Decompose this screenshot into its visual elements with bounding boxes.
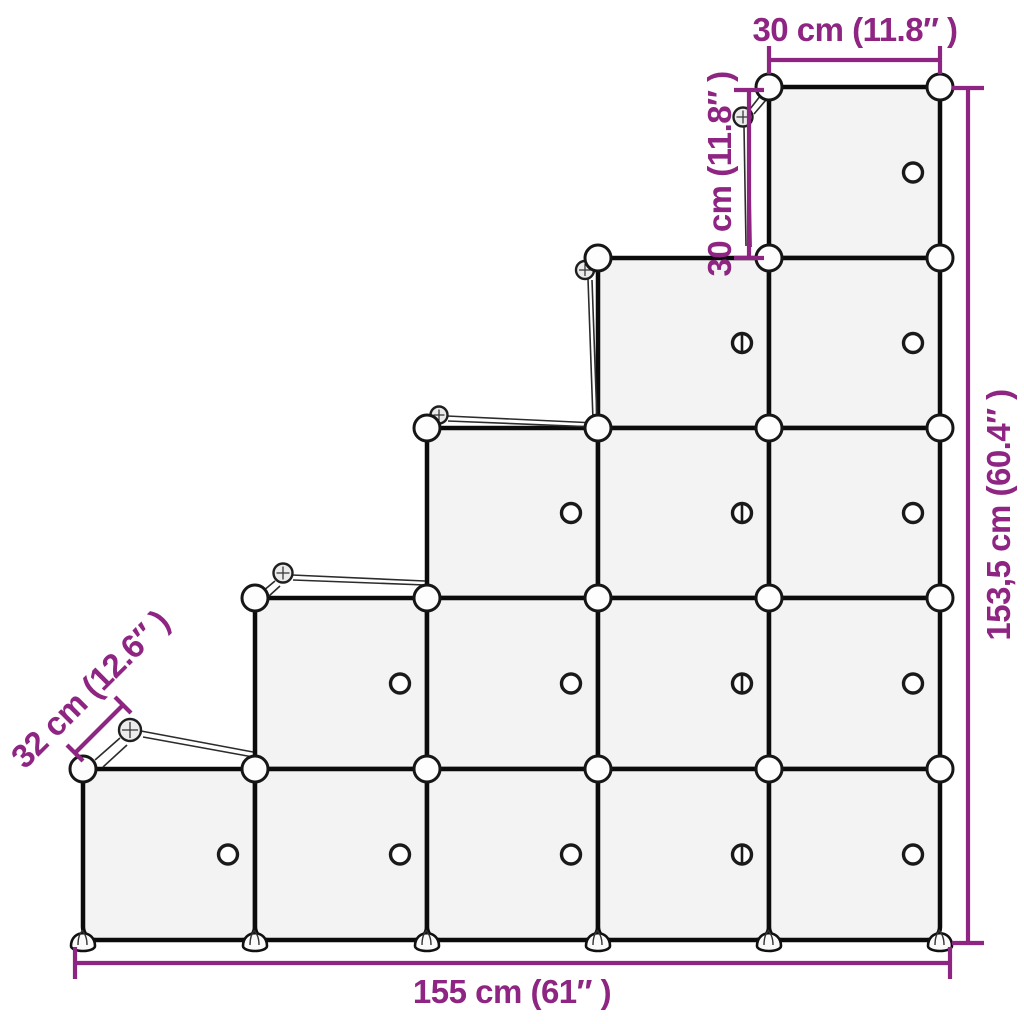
connector-ball — [585, 245, 611, 271]
depth-edge — [744, 126, 746, 246]
total-height-label: 153,5 cm (60.4″ ) — [980, 389, 1017, 640]
foot — [586, 933, 610, 951]
depth-edge — [141, 731, 253, 752]
connector-ball — [927, 245, 953, 271]
connector-ball — [756, 585, 782, 611]
dim-top-width: 30 cm (11.8″ ) — [752, 11, 957, 74]
connector-ball — [585, 585, 611, 611]
dim-total-height: 153,5 cm (60.4″ ) — [952, 88, 1017, 943]
cube-door-knob — [562, 674, 581, 693]
connector-ball — [242, 585, 268, 611]
cube-door-knob — [904, 504, 923, 523]
connector-ball — [927, 585, 953, 611]
cube-door-knob — [391, 674, 410, 693]
depth-edge — [269, 586, 280, 596]
foot — [415, 933, 439, 951]
depth-edge — [95, 738, 120, 760]
connector-ball — [756, 756, 782, 782]
connector-ball — [242, 756, 268, 782]
cube-door-knob — [904, 334, 923, 353]
total-width-label: 155 cm (61″ ) — [413, 973, 611, 1010]
depth-edge — [103, 745, 127, 767]
connector-ball — [414, 415, 440, 441]
cube-door-knob — [904, 674, 923, 693]
dim-depth: 32 cm (12.6″ ) — [4, 603, 176, 775]
connector-ball — [414, 585, 440, 611]
cube-grid — [70, 74, 953, 951]
depth-edge — [143, 737, 253, 757]
cube-door-knob — [904, 845, 923, 864]
cube-door-knob — [562, 845, 581, 864]
connector-ball — [756, 415, 782, 441]
connector-ball — [585, 756, 611, 782]
connector-ball — [414, 756, 440, 782]
cube-door-knob — [391, 845, 410, 864]
cube-door-knob — [219, 845, 238, 864]
dim-total-width: 155 cm (61″ ) — [75, 947, 950, 1010]
depth-label: 32 cm (12.6″ ) — [4, 603, 176, 775]
connector-ball — [927, 74, 953, 100]
connector-ball — [756, 74, 782, 100]
cube-storage-diagram: 30 cm (11.8″ ) 30 cm (11.8″ ) 153,5 cm (… — [0, 0, 1024, 1024]
connector-ball — [927, 756, 953, 782]
foot — [243, 933, 267, 951]
connector-ball — [927, 415, 953, 441]
cube-door-knob — [562, 504, 581, 523]
product-dimension-diagram: 30 cm (11.8″ ) 30 cm (11.8″ ) 153,5 cm (… — [0, 0, 1024, 1024]
foot — [757, 933, 781, 951]
cube-door-knob — [904, 163, 923, 182]
upper-cube-height-label: 30 cm (11.8″ ) — [701, 71, 738, 276]
top-width-label: 30 cm (11.8″ ) — [752, 11, 957, 48]
connector-ball — [585, 415, 611, 441]
